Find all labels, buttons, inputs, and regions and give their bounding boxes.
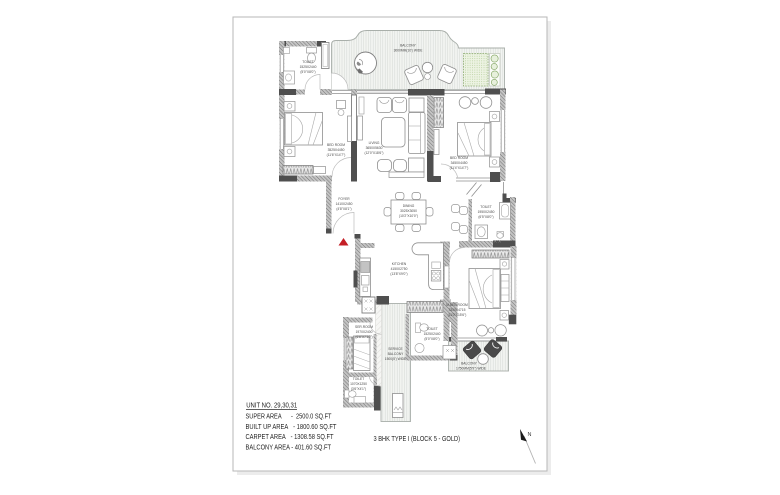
- svg-text:(6'5"X8'0"): (6'5"X8'0"): [478, 215, 493, 219]
- svg-text:3 BHK TYPE I (BLOCK 5 - GOLD): 3 BHK TYPE I (BLOCK 5 - GOLD): [374, 436, 461, 443]
- svg-text:3650X5630: 3650X5630: [366, 146, 383, 150]
- svg-text:(11'0"X15'6"): (11'0"X15'6"): [448, 313, 467, 317]
- svg-text:BALCONY: BALCONY: [388, 352, 405, 356]
- svg-text:SER.ROOM: SER.ROOM: [355, 325, 373, 329]
- svg-text:3025X3050: 3025X3050: [400, 209, 417, 213]
- svg-text:1500(5') WIDE: 1500(5') WIDE: [385, 357, 407, 361]
- svg-text:BALCONY: BALCONY: [461, 362, 478, 366]
- svg-text:(13'8"X9'0"): (13'8"X9'0"): [390, 272, 407, 276]
- svg-text:BALCONY AREA - 401.60 SQ.FT: BALCONY AREA - 401.60 SQ.FT: [246, 444, 332, 451]
- svg-text:4150X2750: 4150X2750: [391, 267, 408, 271]
- svg-text:3350X4715: 3350X4715: [449, 308, 466, 312]
- svg-text:FOYER: FOYER: [338, 197, 350, 201]
- svg-text:CARPET AREA - 1308.58 SQ.FT: CARPET AREA - 1308.58 SQ.FT: [246, 434, 335, 441]
- svg-text:N: N: [528, 432, 532, 438]
- svg-text:UNIT NO. 29,30,31: UNIT NO. 29,30,31: [246, 403, 297, 410]
- svg-text:TOILET: TOILET: [302, 60, 313, 64]
- svg-text:1950X2450: 1950X2450: [478, 210, 495, 214]
- svg-text:BALCONY: BALCONY: [400, 44, 417, 48]
- svg-text:(12'0"X18'6"): (12'0"X18'6"): [365, 151, 384, 155]
- svg-text:TOILET: TOILET: [426, 327, 437, 331]
- svg-text:TOILET: TOILET: [480, 205, 491, 209]
- svg-text:(11'6"X14'7"): (11'6"X14'7"): [327, 153, 346, 157]
- svg-text:(5'0"X8'0"): (5'0"X8'0"): [424, 337, 439, 341]
- svg-text:KITCHEN: KITCHEN: [392, 262, 407, 266]
- svg-text:LIVING: LIVING: [369, 141, 380, 145]
- svg-text:BUILT UP AREA - 1800.60 SQ.: BUILT UP AREA - 1800.60 SQ.FT: [246, 424, 338, 431]
- svg-text:3000MM(10') WIDE: 3000MM(10') WIDE: [394, 49, 424, 53]
- svg-text:SERVICE: SERVICE: [388, 347, 403, 351]
- svg-text:TOILET: TOILET: [353, 377, 364, 381]
- svg-text:(5'0"X8'0"): (5'0"X8'0"): [300, 70, 315, 74]
- svg-text:1410X2450: 1410X2450: [336, 202, 353, 206]
- svg-text:BED ROOM: BED ROOM: [450, 156, 468, 160]
- svg-text:(11'4"X14'7"): (11'4"X14'7"): [450, 166, 469, 170]
- svg-text:SUPER AREA - 2500.0 SQ.F: SUPER AREA - 2500.0 SQ.FT: [246, 413, 333, 420]
- svg-text:3450X4450: 3450X4450: [451, 161, 468, 165]
- svg-text:1070X1250: 1070X1250: [350, 382, 367, 386]
- svg-text:1970X2400: 1970X2400: [356, 330, 373, 334]
- svg-text:(10'2"X10'0"): (10'2"X10'0"): [399, 214, 418, 218]
- svg-text:(6'6"X7'10"): (6'6"X7'10"): [355, 335, 372, 339]
- svg-text:DINING: DINING: [403, 204, 415, 208]
- svg-text:M.BED ROOM: M.BED ROOM: [446, 303, 468, 307]
- svg-text:(3'6"X4'1"): (3'6"X4'1"): [351, 387, 366, 391]
- svg-text:BED ROOM: BED ROOM: [327, 143, 345, 147]
- svg-text:(4'8"X8'1"): (4'8"X8'1"): [336, 207, 351, 211]
- svg-text:3525X4450: 3525X4450: [328, 148, 345, 152]
- svg-text:1525X2440: 1525X2440: [424, 332, 441, 336]
- svg-text:1525X2440: 1525X2440: [300, 65, 317, 69]
- svg-text:1750MM(5'9") WIDE: 1750MM(5'9") WIDE: [456, 367, 487, 371]
